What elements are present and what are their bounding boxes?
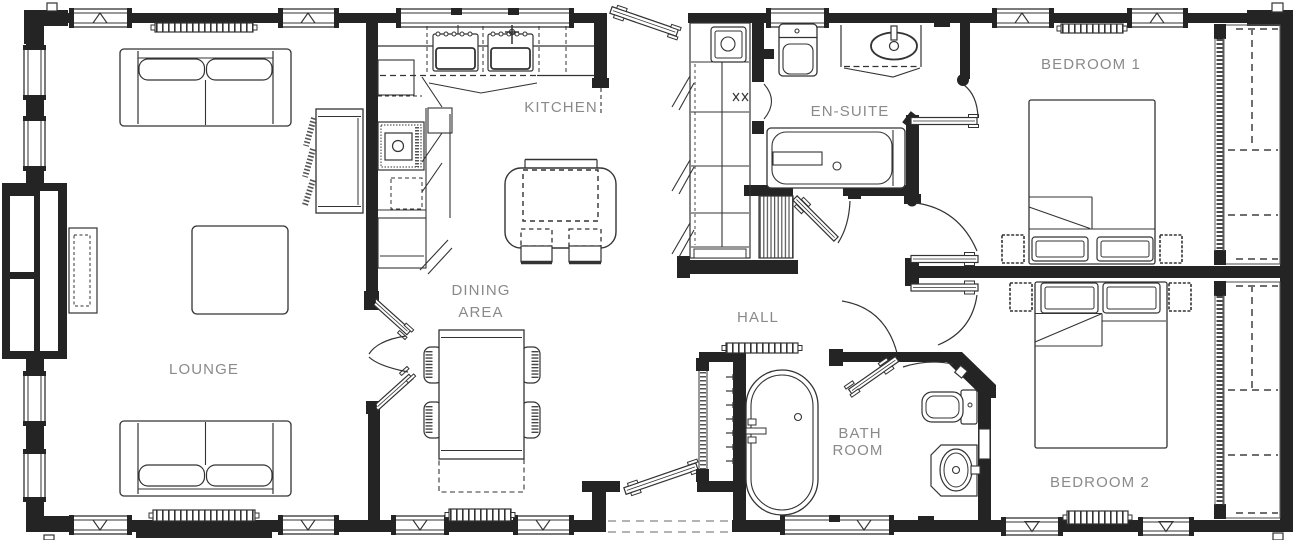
svg-text:DINING: DINING: [451, 282, 510, 299]
svg-text:BEDROOM 2: BEDROOM 2: [1050, 474, 1150, 491]
svg-text:HALL: HALL: [737, 309, 779, 326]
svg-text:BEDROOM 1: BEDROOM 1: [1041, 56, 1141, 73]
svg-text:ROOM: ROOM: [832, 442, 883, 459]
svg-text:AREA: AREA: [458, 304, 503, 321]
svg-text:BATH: BATH: [838, 425, 881, 442]
svg-text:LOUNGE: LOUNGE: [169, 361, 239, 378]
svg-text:KITCHEN: KITCHEN: [524, 99, 598, 116]
svg-text:EN-SUITE: EN-SUITE: [811, 103, 890, 120]
